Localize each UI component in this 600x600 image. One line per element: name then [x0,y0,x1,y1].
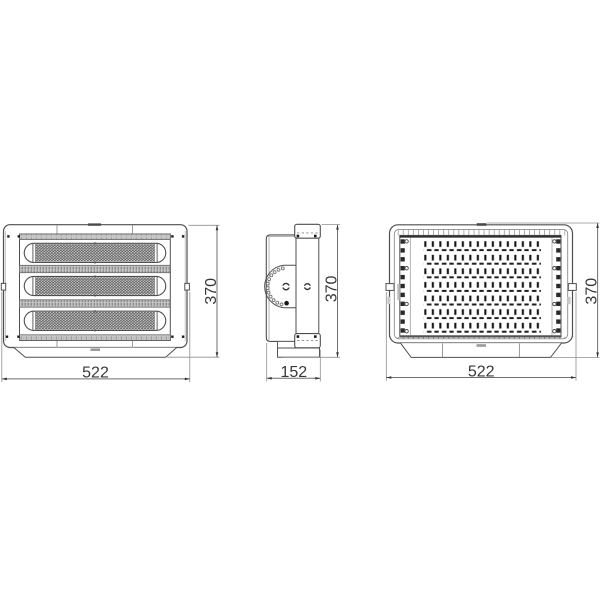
svg-text:522: 522 [82,364,109,381]
svg-text:370: 370 [584,278,600,305]
svg-text:370: 370 [203,278,220,305]
svg-text:522: 522 [468,364,495,381]
svg-text:370: 370 [324,275,341,302]
svg-text:152: 152 [280,364,307,381]
